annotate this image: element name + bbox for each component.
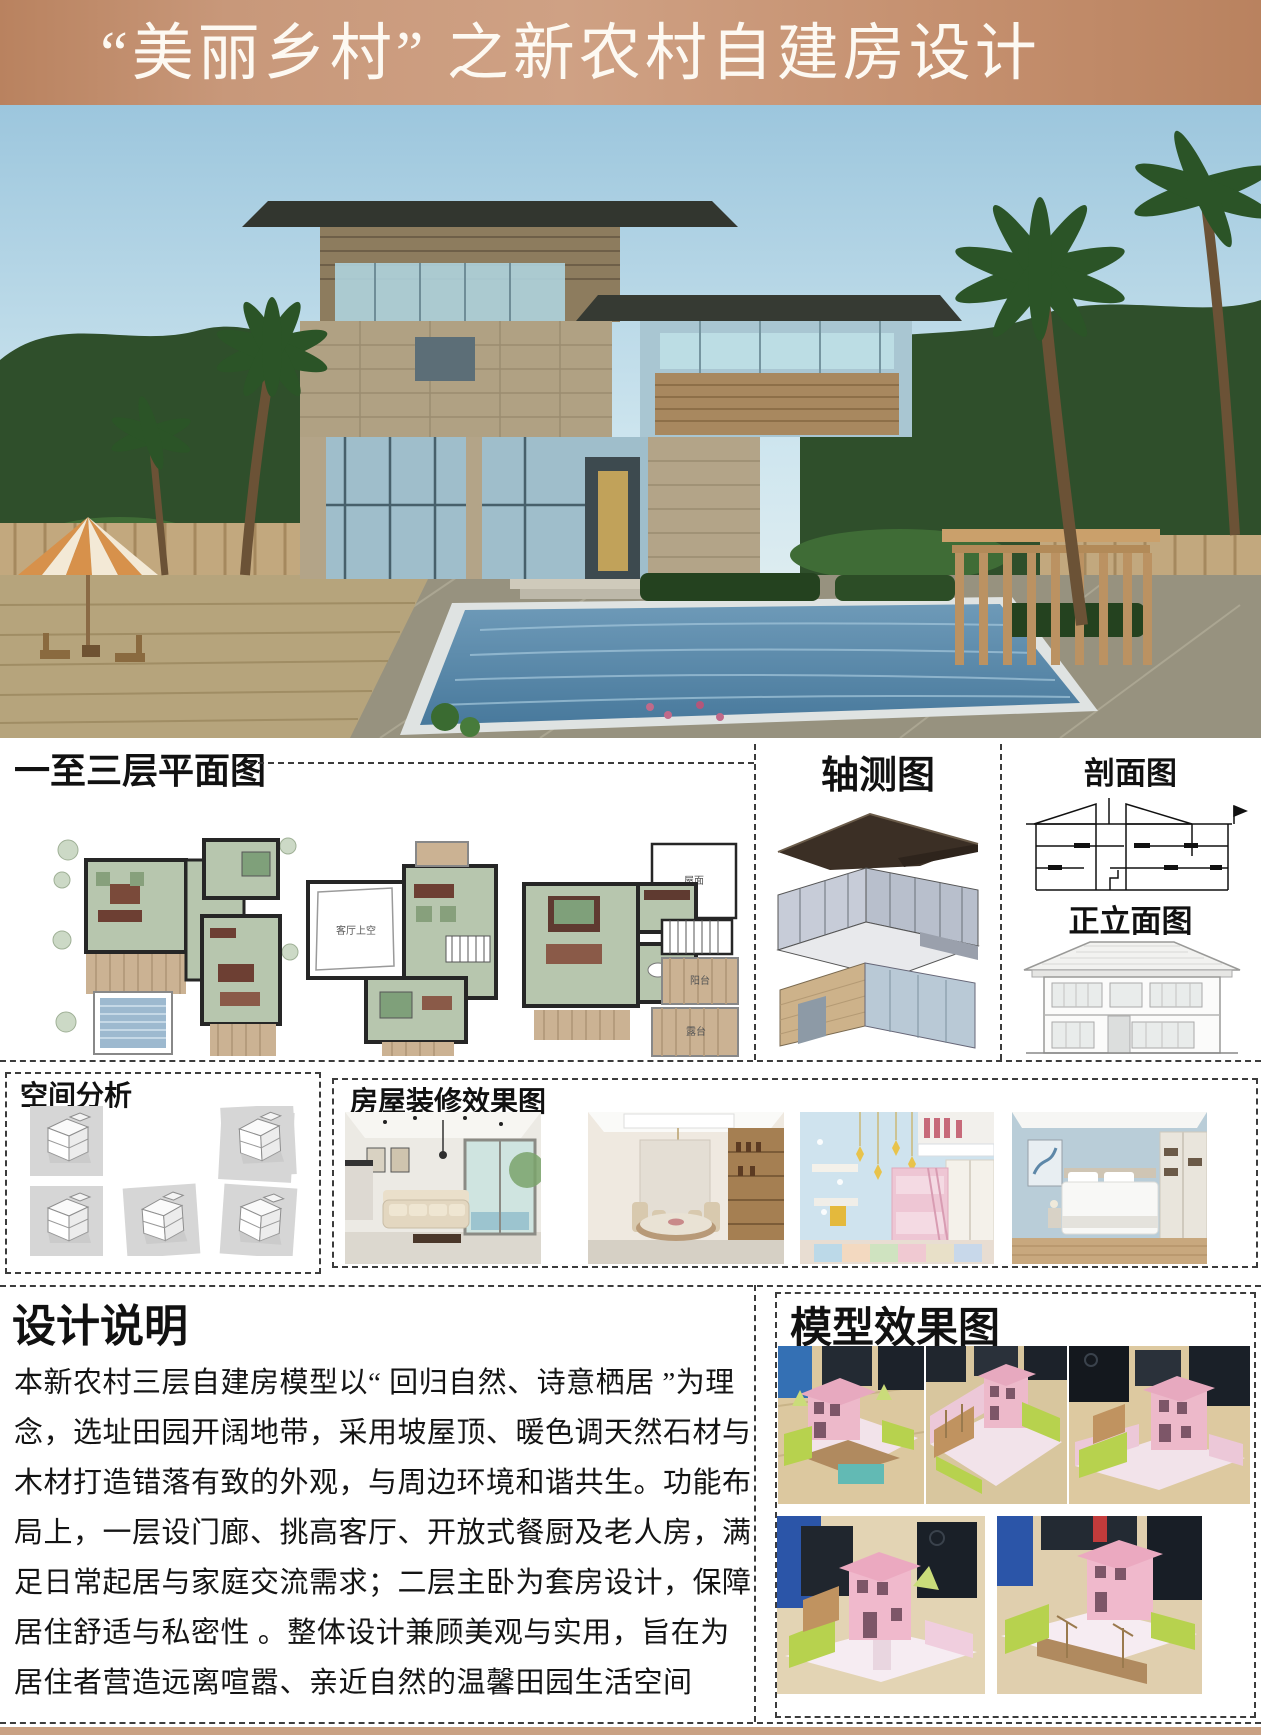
axon-roof bbox=[778, 814, 978, 870]
title-banner: “美丽乡村” 之新农村自建房设计 bbox=[0, 0, 1261, 105]
poster-title: “美丽乡村” 之新农村自建房设计 bbox=[0, 0, 1261, 105]
floor-plan-2: 客厅上空 bbox=[296, 836, 508, 1058]
top-roof bbox=[242, 201, 738, 227]
description-line-3: 木材打造错落有致的外观，与周边环境和谐共生。功能布 bbox=[14, 1458, 714, 1508]
hero-render-photo bbox=[0, 105, 1261, 738]
interior-photo-kids-room bbox=[800, 1112, 994, 1264]
model-photo-1 bbox=[778, 1346, 924, 1504]
poster-board: “美丽乡村” 之新农村自建房设计 bbox=[0, 0, 1261, 1735]
spatial-thumbnails bbox=[30, 1106, 312, 1256]
plan3-terrace-label: 露台 bbox=[686, 1025, 706, 1038]
footer-accent-bar bbox=[0, 1727, 1261, 1735]
interior-photo-bedroom bbox=[1012, 1112, 1207, 1264]
description-line-2: 念，选址田园开阔地带，采用坡屋顶、暖色调天然石材与 bbox=[14, 1408, 714, 1458]
model-photo-4 bbox=[777, 1516, 985, 1694]
divider-bottom-band-bottom bbox=[0, 1722, 1261, 1724]
divider-mid-bottom bbox=[0, 1060, 1261, 1062]
divider-after-plans-title bbox=[248, 762, 754, 764]
section-drawing bbox=[1014, 794, 1249, 899]
description-line-6: 居住舒适与私密性 。整体设计兼顾美观与实用，旨在为 bbox=[14, 1608, 714, 1658]
design-description-title: 设计说明 bbox=[12, 1290, 188, 1354]
description-line-5: 足日常起居与家庭交流需求；二层主卧为套房设计，保障 bbox=[14, 1558, 714, 1608]
third-floor-glass-balcony bbox=[335, 263, 565, 321]
model-photo-3 bbox=[1069, 1346, 1250, 1504]
plan2-void-label: 客厅上空 bbox=[336, 924, 376, 937]
model-photo-2 bbox=[926, 1346, 1067, 1504]
pool bbox=[400, 597, 1098, 735]
axon-lower-volume bbox=[780, 963, 975, 1048]
interior-photo-living-room bbox=[345, 1112, 541, 1264]
interior-photo-dining-room bbox=[588, 1112, 784, 1264]
plans-section-title: 一至三层平面图 bbox=[14, 742, 266, 794]
elevation-drawing bbox=[1012, 932, 1252, 1058]
description-line-4: 局上，一层设门廊、挑高客厅、开放式餐厨及老人房，满 bbox=[14, 1508, 714, 1558]
axon-section-title: 轴测图 bbox=[756, 744, 1000, 799]
floor-plan-3: 屋面 阳台 露台 bbox=[512, 832, 750, 1060]
wing-roof bbox=[576, 295, 962, 321]
axon-mid-floor bbox=[778, 868, 978, 978]
model-photo-5 bbox=[997, 1516, 1202, 1694]
design-description-text: 本新农村三层自建房模型以“ 回归自然、诗意栖居 ”为理 念，选址田园开阔地带，采… bbox=[14, 1358, 714, 1708]
hero-render-scene bbox=[0, 105, 1261, 738]
divider-bottom-band-top bbox=[0, 1285, 1261, 1287]
section-view-title: 剖面图 bbox=[1000, 748, 1261, 793]
description-line-7: 居住者营造远离喧嚣、亲近自然的温馨田园生活空间 bbox=[14, 1658, 714, 1708]
divider-desc-model bbox=[754, 1285, 756, 1722]
axonometric-drawing bbox=[770, 800, 985, 1055]
plan3-balcony-label: 阳台 bbox=[690, 974, 710, 987]
description-line-1: 本新农村三层自建房模型以“ 回归自然、诗意栖居 ”为理 bbox=[14, 1358, 714, 1408]
floor-plan-1 bbox=[52, 832, 300, 1060]
